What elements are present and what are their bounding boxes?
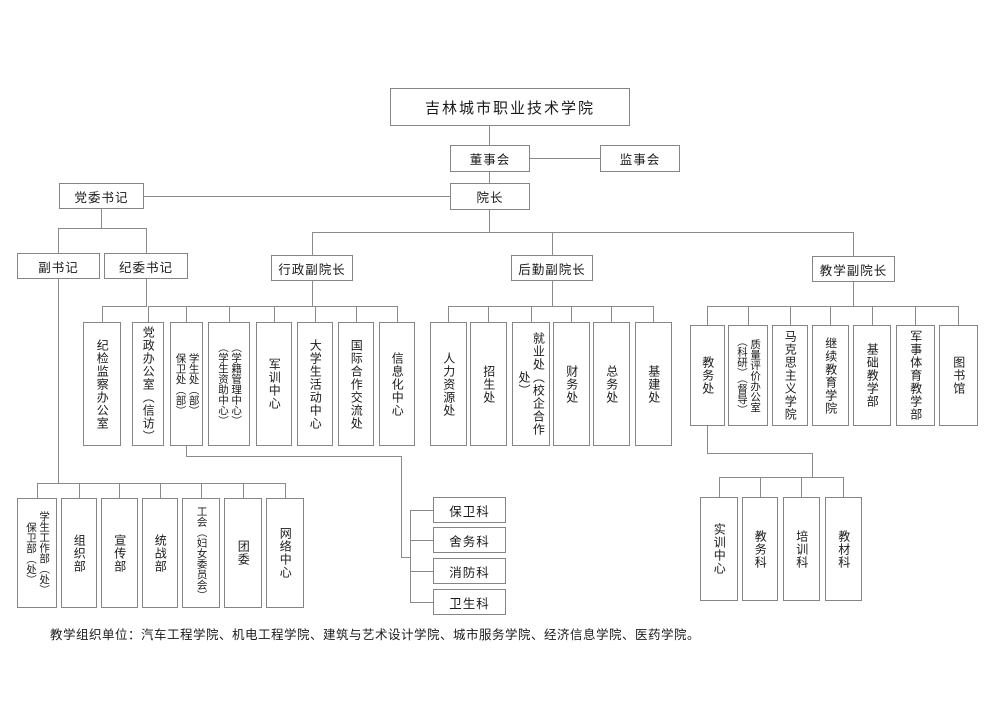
connector-line [410, 540, 433, 541]
section-label: 卫生科 [449, 593, 490, 612]
node-president: 院长 [450, 183, 530, 210]
connector-line [186, 456, 402, 457]
connector-line [448, 307, 449, 322]
dept-label: 工会（妇女委员会） [194, 506, 207, 601]
connector-line [102, 307, 103, 322]
connector-line [853, 233, 854, 256]
connector-line [146, 279, 147, 306]
connector-line [102, 306, 147, 307]
dept-label: 信息化中心 [390, 352, 404, 417]
node-fire-control-section: 消防科 [433, 558, 506, 584]
connector-line [160, 484, 161, 498]
dept-label: 马克思主义学院 [783, 330, 797, 421]
connector-line [274, 307, 275, 322]
dept-label: 组织部 [72, 534, 86, 573]
connector-line [119, 484, 120, 498]
connector-line [58, 228, 147, 229]
node-deputy-secretary: 副书记 [17, 253, 100, 279]
dept-label: 党政办公室（信访） [141, 326, 155, 443]
connector-line [312, 281, 313, 306]
node-hr-office: 人力资源处 [430, 322, 467, 446]
node-general-affairs-office: 总务处 [593, 322, 630, 446]
dept-label: （学生资助中心） [216, 342, 229, 426]
connector-line [410, 602, 433, 603]
connector-line [448, 306, 654, 307]
connector-line [201, 484, 202, 498]
node-student-security-dept: 学生处（部）保卫处（部） [170, 322, 203, 446]
section-label: 培训科 [794, 530, 808, 569]
node-military-training-center: 军训中心 [256, 322, 292, 446]
connector-line [958, 307, 959, 325]
node-vp-teaching: 教学副院长 [812, 256, 895, 282]
dept-label: 保卫处（部） [173, 353, 186, 416]
connector-line [801, 478, 802, 497]
deputy-secretary-label: 副书记 [38, 257, 79, 276]
connector-line [872, 307, 873, 325]
connector-line [148, 307, 149, 322]
dept-label: 保卫部（处） [24, 511, 37, 595]
node-military-pe-teaching-dept: 军事体育教学部 [896, 325, 935, 426]
connector-line [552, 281, 553, 306]
node-health-section: 卫生科 [433, 589, 506, 615]
org-chart: 吉林城市职业技术学院 董事会 监事会 院长 党委书记 副书记 纪委书记 行政副院… [0, 0, 1000, 707]
connector-line [719, 477, 844, 478]
dept-label: 大学生活动中心 [308, 339, 322, 430]
dept-label: 总务处 [604, 365, 618, 404]
connector-line [243, 484, 244, 498]
connector-line [707, 306, 959, 307]
dept-label: （科研）（督导） [735, 336, 748, 415]
node-vp-administration: 行政副院长 [271, 255, 353, 281]
section-label: 舍务科 [449, 531, 490, 550]
dept-label: 人力资源处 [441, 352, 455, 417]
node-discipline-inspection-office: 纪检监察办公室 [83, 322, 121, 446]
connector-line [830, 307, 831, 325]
dept-label: 就业处（校企合作处） [517, 323, 546, 445]
connector-line [707, 453, 813, 454]
node-party-gov-office: 党政办公室（信访） [132, 322, 164, 446]
connector-line [58, 279, 59, 483]
connector-line [410, 510, 433, 511]
section-label: 教务科 [753, 530, 767, 569]
dept-label: 国际合作交流处 [349, 339, 363, 430]
node-united-front-dept: 统战部 [142, 498, 178, 608]
connector-line [915, 307, 916, 325]
dept-label: 财务处 [564, 365, 578, 404]
connector-line [186, 307, 187, 322]
dept-label: 军事体育教学部 [908, 330, 922, 421]
node-vp-logistics: 后勤副院长 [511, 255, 593, 281]
dept-label: 学生处（部） [187, 353, 200, 416]
dept-label: 招生处 [481, 365, 495, 404]
connector-line [571, 307, 572, 322]
president-label: 院长 [476, 187, 503, 206]
connector-line [410, 510, 411, 603]
node-labor-union: 工会（妇女委员会） [182, 498, 220, 608]
connector-line [760, 478, 761, 497]
node-international-cooperation-office: 国际合作交流处 [338, 322, 374, 446]
dept-label: 统战部 [153, 534, 167, 573]
connector-line [101, 209, 102, 228]
connector-line [707, 307, 708, 325]
connector-line [611, 307, 612, 322]
node-practical-training-center: 实训中心 [700, 497, 738, 601]
node-admissions-office: 招生处 [470, 322, 507, 446]
connector-line [315, 307, 316, 322]
dept-label: 宣传部 [112, 534, 126, 573]
node-board-of-directors: 董事会 [450, 145, 530, 172]
dept-label: 图书馆 [951, 356, 965, 395]
college-title-label: 吉林城市职业技术学院 [425, 97, 595, 118]
connector-line [285, 484, 286, 498]
node-academic-affairs-office: 教务处 [690, 325, 725, 426]
connector-line [312, 232, 854, 233]
node-dormitory-section: 舍务科 [433, 527, 506, 553]
node-supervisory-board: 监事会 [600, 145, 680, 172]
connector-line [790, 307, 791, 325]
connector-line [489, 210, 490, 232]
connector-line [530, 158, 600, 159]
connector-line [58, 229, 59, 253]
node-continuing-education-college: 继续教育学院 [812, 325, 849, 426]
connector-line [843, 478, 844, 497]
party-secretary-label: 党委书记 [74, 187, 128, 206]
connector-line [653, 307, 654, 322]
discipline-secretary-label: 纪委书记 [119, 257, 173, 276]
node-student-activity-center: 大学生活动中心 [297, 322, 333, 446]
node-basic-teaching-dept: 基础教学部 [853, 325, 891, 426]
connector-line [707, 426, 708, 453]
connector-line [229, 307, 230, 322]
node-student-work-security-dept: 学生工作部（处）保卫部（处） [17, 498, 57, 608]
node-organization-dept: 组织部 [61, 498, 97, 608]
vp-logistics-label: 后勤副院长 [518, 259, 586, 278]
node-employment-office: 就业处（校企合作处） [512, 322, 550, 446]
connector-line [853, 282, 854, 306]
node-security-section: 保卫科 [433, 497, 506, 523]
connector-line [37, 484, 38, 498]
board-label: 董事会 [470, 149, 511, 168]
connector-line [146, 229, 147, 253]
dept-label: 继续教育学院 [823, 337, 837, 415]
section-label: 实训中心 [712, 523, 726, 575]
dept-label: 基建处 [646, 365, 660, 404]
node-infrastructure-office: 基建处 [635, 322, 672, 446]
node-academic-affairs-section: 教务科 [742, 497, 778, 601]
dept-label: 网络中心 [278, 527, 292, 579]
teaching-units-caption: 教学组织单位：汽车工程学院、机电工程学院、建筑与艺术设计学院、城市服务学院、经济… [50, 624, 700, 643]
connector-line [488, 307, 489, 322]
node-party-committee-secretary: 党委书记 [59, 183, 144, 209]
node-discipline-committee-secretary: 纪委书记 [104, 253, 188, 279]
connector-line [312, 233, 313, 255]
node-network-center: 网络中心 [266, 498, 304, 608]
node-youth-league: 团委 [224, 498, 262, 608]
node-library: 图书馆 [939, 325, 978, 426]
dept-label: 纪检监察办公室 [95, 339, 109, 430]
connector-line [356, 307, 357, 322]
dept-label: 军训中心 [267, 358, 281, 410]
connector-line [719, 478, 720, 497]
connector-line [812, 453, 813, 477]
connector-line [79, 484, 80, 498]
dept-label: 团委 [236, 540, 250, 566]
connector-line [489, 172, 490, 183]
section-label: 消防科 [449, 562, 490, 581]
dept-label: 教务处 [700, 356, 714, 395]
section-label: 保卫科 [449, 501, 490, 520]
vp-admin-label: 行政副院长 [278, 259, 346, 278]
connector-line [186, 446, 187, 456]
node-teaching-materials-section: 教材科 [825, 497, 862, 601]
node-information-center: 信息化中心 [379, 322, 415, 446]
dept-label: 基础教学部 [865, 343, 879, 408]
connector-line [410, 571, 433, 572]
connector-line [397, 307, 398, 322]
connector-line [489, 126, 490, 145]
connector-line [552, 233, 553, 255]
connector-line [401, 456, 402, 557]
node-finance-office: 财务处 [553, 322, 590, 446]
connector-line [531, 307, 532, 322]
node-training-section: 培训科 [783, 497, 820, 601]
node-college-title: 吉林城市职业技术学院 [390, 88, 630, 126]
node-quality-evaluation-office: 质量评价办公室（科研）（督导） [728, 325, 768, 426]
node-student-registry-aid-centers: （学籍管理中心）（学生资助中心） [208, 322, 250, 446]
dept-label: 学生工作部（处） [37, 511, 50, 595]
connector-line [144, 196, 450, 197]
section-label: 教材科 [836, 530, 850, 569]
dept-label: （学籍管理中心） [229, 342, 242, 426]
dept-label: 质量评价办公室 [748, 336, 761, 415]
node-marxism-college: 马克思主义学院 [772, 325, 808, 426]
node-propaganda-dept: 宣传部 [101, 498, 138, 608]
connector-line [37, 483, 286, 484]
connector-line [748, 307, 749, 325]
vp-teaching-label: 教学副院长 [820, 260, 888, 279]
supervisory-board-label: 监事会 [620, 149, 661, 168]
